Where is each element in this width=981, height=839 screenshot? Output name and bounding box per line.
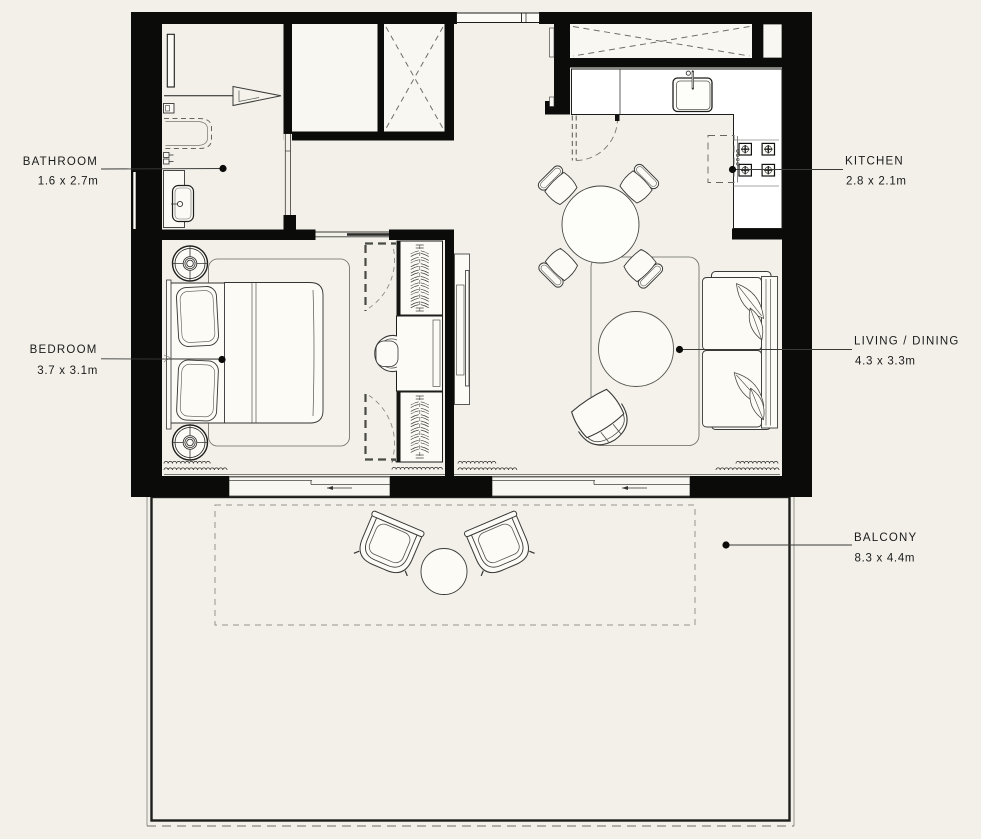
svg-text:1.6 x 2.7m: 1.6 x 2.7m (38, 176, 99, 188)
svg-text:BATHROOM: BATHROOM (23, 156, 98, 168)
svg-text:BALCONY: BALCONY (854, 532, 917, 544)
svg-text:BEDROOM: BEDROOM (30, 344, 98, 356)
svg-text:3.7 x 3.1m: 3.7 x 3.1m (37, 365, 98, 377)
svg-text:LIVING / DINING: LIVING / DINING (854, 336, 960, 348)
svg-text:2.8 x 2.1m: 2.8 x 2.1m (846, 176, 907, 188)
svg-text:8.3 x 4.4m: 8.3 x 4.4m (855, 553, 916, 565)
svg-text:4.3 x 3.3m: 4.3 x 3.3m (855, 356, 916, 368)
svg-text:KITCHEN: KITCHEN (845, 156, 904, 168)
